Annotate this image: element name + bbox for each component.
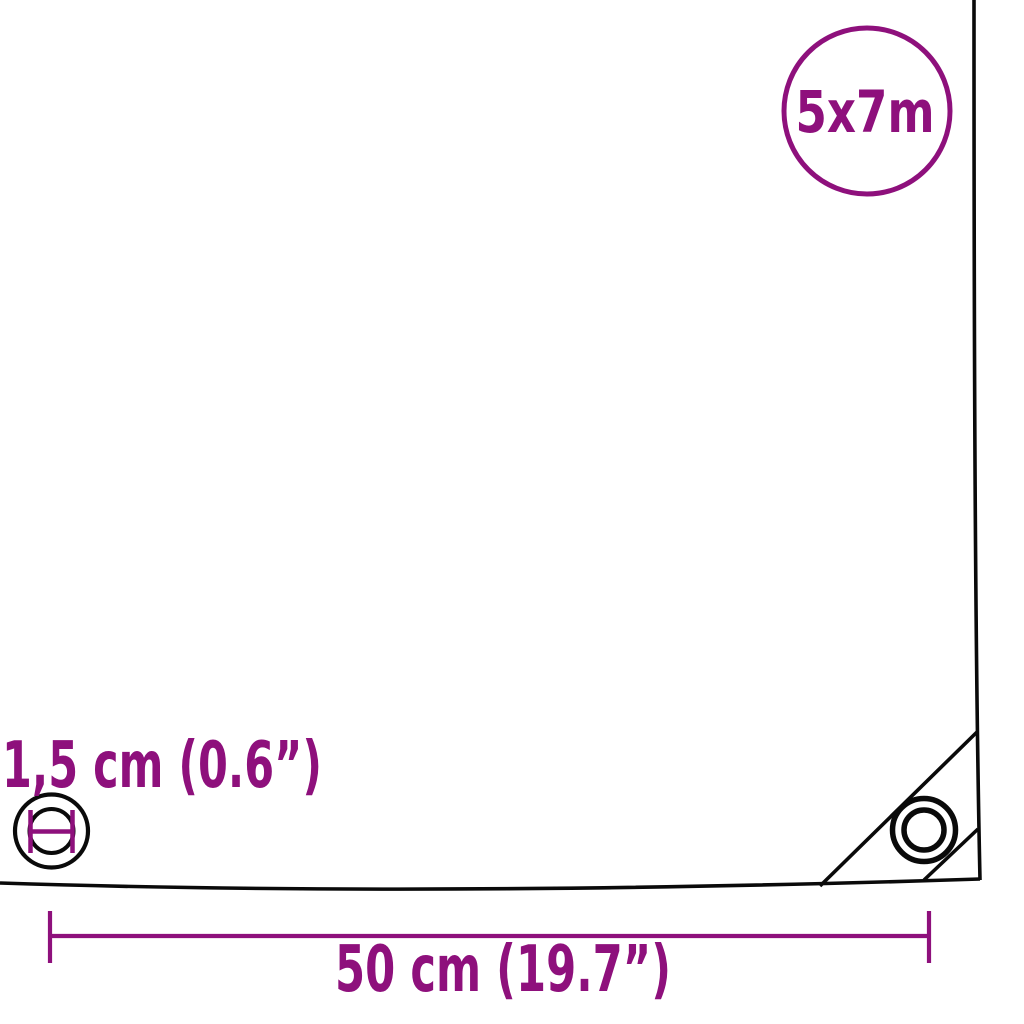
grommet-spacing-label: 50 cm (19.7”) xyxy=(335,933,671,1007)
tarp-bottom-edge xyxy=(0,879,980,889)
tarp-right-edge xyxy=(974,0,980,880)
grommet-detail-icon xyxy=(15,795,88,868)
tarpaulin-diagram-canvas: 1,5 cm (0.6”) 50 cm (19.7”) 5x7m xyxy=(0,0,1024,1024)
grommet-diameter-label: 1,5 cm (0.6”) xyxy=(2,729,322,803)
size-badge-label: 5x7m xyxy=(796,78,935,146)
product-dimension-diagram: 1,5 cm (0.6”) 50 cm (19.7”) 5x7m xyxy=(0,0,1024,1024)
grommet-icon xyxy=(893,799,956,862)
size-badge: 5x7m xyxy=(784,28,950,194)
